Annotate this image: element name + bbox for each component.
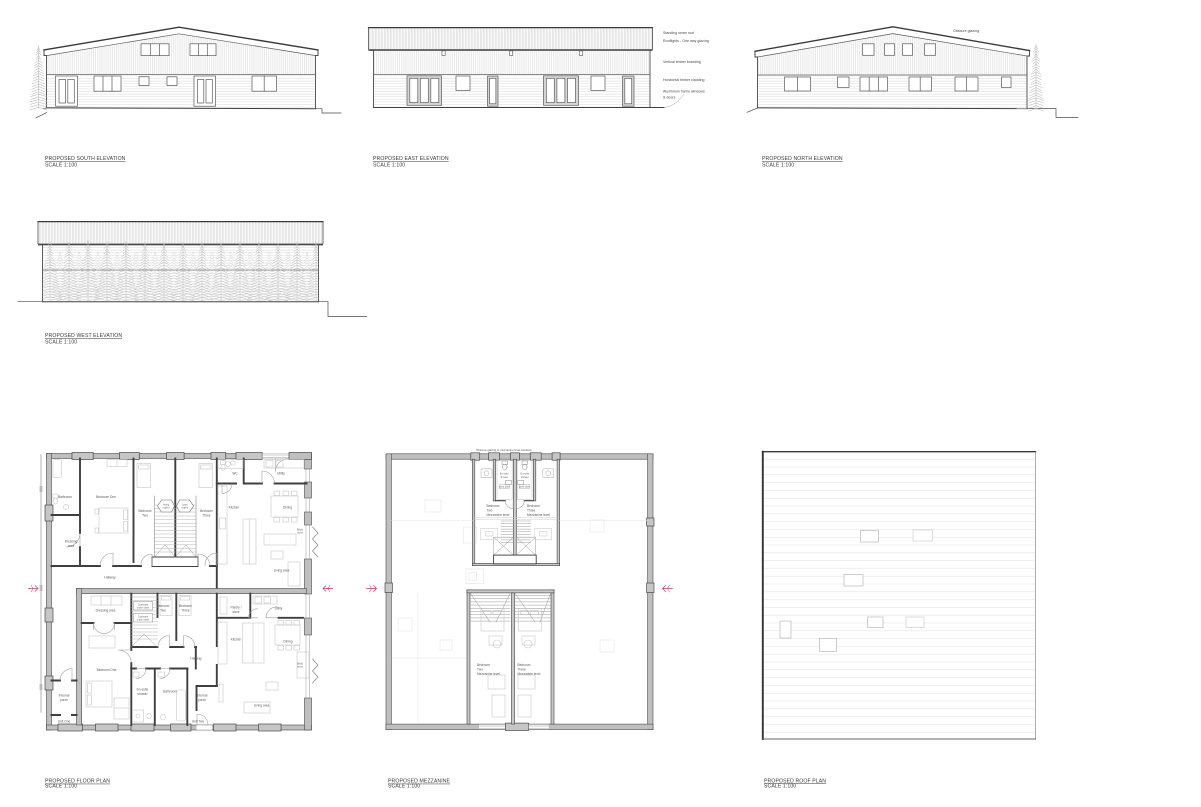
svg-text:pivot door: pivot door [519, 486, 530, 489]
svg-text:PROPOSED EAST ELEVATION: PROPOSED EAST ELEVATION [373, 156, 449, 162]
svg-text:Mezzanine level: Mezzanine level [518, 672, 541, 676]
svg-text:shower: shower [521, 476, 529, 479]
svg-text:Dining: Dining [283, 640, 292, 644]
svg-text:Bedroom One: Bedroom One [97, 668, 117, 672]
svg-text:Kitchen: Kitchen [231, 638, 242, 642]
svg-text:Living area: Living area [274, 569, 290, 573]
svg-text:Pantry /: Pantry / [231, 606, 242, 610]
svg-text:Dining: Dining [283, 506, 292, 510]
svg-text:Bedroom: Bedroom [139, 509, 152, 513]
svg-text:Unit Two: Unit Two [192, 720, 205, 724]
svg-text:Obscure glazing to mezzanine l: Obscure glazing to mezzanine level windo… [476, 448, 532, 452]
svg-text:Internal: Internal [197, 694, 208, 698]
svg-text:Two: Two [160, 608, 166, 612]
svg-text:Bedroom: Bedroom [477, 663, 490, 667]
svg-text:area: area [68, 544, 75, 548]
svg-text:under stairs: under stairs [137, 619, 150, 622]
svg-text:Dressing area: Dressing area [96, 609, 116, 613]
svg-text:doors: doors [297, 532, 304, 535]
svg-text:Standing seam roof: Standing seam roof [663, 31, 694, 35]
svg-text:Two: Two [142, 513, 148, 517]
svg-text:Bedroom One: Bedroom One [96, 495, 116, 499]
svg-text:SCALE 1:100: SCALE 1:100 [388, 783, 420, 789]
svg-text:Obscure glazing: Obscure glazing [953, 29, 979, 33]
svg-text:Mezzanine level: Mezzanine level [527, 513, 550, 517]
svg-text:SCALE 1:100: SCALE 1:100 [373, 162, 405, 168]
svg-text:Mezzanine level: Mezzanine level [477, 672, 500, 676]
svg-text:& doors: & doors [663, 96, 676, 100]
svg-text:Three: Three [202, 513, 211, 517]
svg-text:Horizontal timber cladding: Horizontal timber cladding [663, 78, 705, 82]
svg-text:porch: porch [60, 698, 68, 702]
svg-text:Vertical timber boarding: Vertical timber boarding [663, 60, 701, 64]
svg-text:SCALE 1:100: SCALE 1:100 [45, 783, 77, 789]
svg-text:Aluminium frame windows: Aluminium frame windows [663, 90, 705, 94]
svg-text:WC: WC [232, 472, 238, 476]
svg-text:doors: doors [297, 666, 304, 669]
svg-text:Three: Three [518, 667, 527, 671]
svg-text:Mezzanine level: Mezzanine level [487, 513, 510, 517]
svg-text:Hallway: Hallway [104, 576, 116, 580]
svg-text:Bedroom: Bedroom [487, 504, 500, 508]
svg-text:En-suite: En-suite [137, 688, 149, 692]
svg-text:shower: shower [500, 476, 508, 479]
svg-text:PROPOSED WEST ELEVATION: PROPOSED WEST ELEVATION [45, 333, 122, 339]
svg-text:cupb'd: cupb'd [181, 507, 189, 510]
svg-text:Two: Two [487, 508, 493, 512]
svg-text:Rooflights - One way glazing: Rooflights - One way glazing [663, 39, 709, 43]
svg-text:Utility: Utility [275, 607, 283, 611]
svg-text:SCALE 1:100: SCALE 1:100 [45, 162, 77, 168]
svg-text:shower: shower [137, 692, 148, 696]
svg-text:Three: Three [181, 608, 190, 612]
svg-text:SCALE 1:100: SCALE 1:100 [45, 340, 77, 346]
svg-text:cupb'd: cupb'd [163, 507, 171, 510]
svg-text:SCALE 1:100: SCALE 1:100 [762, 162, 794, 168]
svg-text:Bathroom: Bathroom [163, 690, 177, 694]
svg-text:Internal: Internal [59, 694, 70, 698]
svg-text:Dressing: Dressing [65, 540, 78, 544]
svg-text:Two: Two [477, 667, 483, 671]
svg-text:Hallway: Hallway [190, 657, 202, 661]
svg-text:Three: Three [527, 508, 536, 512]
svg-text:Bedroom: Bedroom [518, 663, 531, 667]
svg-text:under stairs: under stairs [137, 607, 150, 610]
svg-text:Bedroom: Bedroom [200, 509, 213, 513]
svg-text:porch: porch [198, 698, 206, 702]
svg-text:Bathroom: Bathroom [58, 495, 72, 499]
svg-text:pivot door: pivot door [499, 486, 510, 489]
svg-text:Bedroom: Bedroom [157, 604, 170, 608]
svg-text:Bedroom: Bedroom [527, 504, 540, 508]
svg-text:SCALE 1:100: SCALE 1:100 [764, 783, 796, 789]
svg-text:PROPOSED SOUTH ELEVATION: PROPOSED SOUTH ELEVATION [45, 156, 126, 162]
svg-text:Unit One: Unit One [58, 720, 71, 724]
svg-text:Living area: Living area [254, 704, 270, 708]
svg-text:PROPOSED NORTH ELEVATION: PROPOSED NORTH ELEVATION [762, 156, 843, 162]
svg-text:Bedroom: Bedroom [179, 604, 192, 608]
svg-text:store: store [232, 610, 239, 614]
svg-text:Utility: Utility [277, 472, 285, 476]
svg-text:Kitchen: Kitchen [229, 506, 240, 510]
